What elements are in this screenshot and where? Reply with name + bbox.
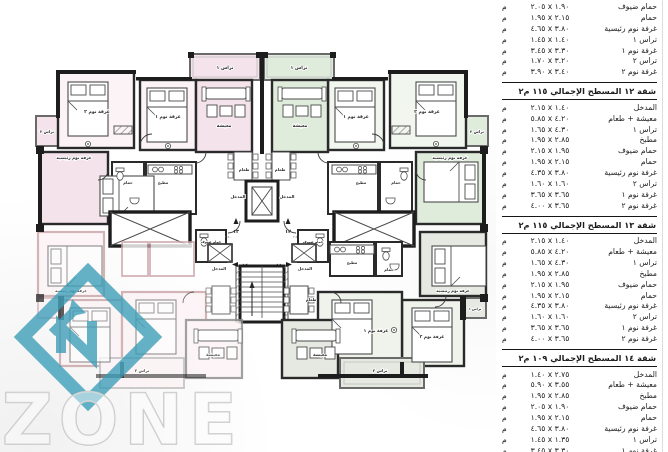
unit-label: م (502, 114, 515, 125)
room-dimensions: ٥.٨٥ x ٤.٢٠ (515, 247, 585, 258)
room-name: حمام ضيوف (585, 402, 657, 413)
room-name: تراس ١ (585, 125, 657, 136)
room-name: حمام (585, 413, 657, 424)
room-name: المدخل (585, 236, 657, 247)
entrance-label: المدخل (212, 266, 227, 271)
room-dimensions: ٣.٦٥ x ٣.٦٥ (515, 190, 585, 201)
room-dimensions: ٤.٠٠ x ٣.٦٥ (515, 201, 585, 212)
room-label: تراس ٢ (373, 368, 388, 373)
room-name: حمام (585, 13, 657, 24)
room-dimensions: ٥.٩٠ x ٣.٥٥ (515, 380, 585, 391)
room-name: مطبخ (585, 135, 657, 146)
apartment-section-header: شقة ١٣ المسطح الإجمالي ١١٥ م٢ (502, 216, 657, 234)
unit-label: م (502, 247, 515, 258)
room-dimensions: ٢.٠٥ x ١.٩٠ (515, 402, 585, 413)
ceiling-fan-icon (85, 141, 90, 146)
room-dimensions: ٢.١٥ x ١.٩٥ (515, 146, 585, 157)
room-dimensions: ١.٦٥ x ٤.٣٠ (515, 125, 585, 136)
dimension-row: م١.٦٥ x ٤.٣٠تراس ١ (502, 125, 657, 136)
room-name: غرفة نوم ٢ (585, 67, 657, 78)
room-label: تراس ٢ (40, 129, 55, 134)
room-name: تراس ٢ (585, 312, 657, 323)
unit-label: م (502, 280, 515, 291)
sink-icon (386, 198, 395, 204)
unit-label: م (502, 446, 515, 452)
unit-label: م (502, 67, 515, 78)
dimension-row: م١.٦٠ x ١.٦٠تراس ٢ (502, 312, 657, 323)
entrance-label: المدخل (280, 194, 296, 199)
sink-icon (130, 198, 139, 204)
ceiling-fan-icon (433, 141, 438, 146)
room-dimensions: ٤.٦٥ x ٣.٨٠ (515, 424, 585, 435)
dining-table-icon (206, 286, 236, 314)
room-dimensions: ٣.٦٥ x ٣.٦٥ (515, 323, 585, 334)
unit-label: م (502, 312, 515, 323)
dimension-row: م٢.٠٥ x ١.٩٠حمام ضيوف (502, 402, 657, 413)
dimension-row: م٣.٩٠ x ٣.٤٠غرفة نوم ٢ (502, 67, 657, 78)
room-label: مطبخ (356, 180, 367, 185)
room-label: تراس ١ (291, 66, 308, 71)
bed-icon (68, 82, 108, 136)
room-dimensions: ٤.٣٥ x ٣.٨٠ (515, 168, 585, 179)
room-label: حمام (391, 180, 401, 185)
dimension-row: م٣.٦٥ x ٣.٦٥غرفة نوم ١ (502, 323, 657, 334)
unit-label: م (502, 291, 515, 302)
kitchen-counter-icon (330, 245, 374, 254)
dimension-table: م٢.٠٥ x ١.٩٠حمام ضيوفم١.٩٥ x ٢.١٥حمامم٤.… (496, 0, 668, 452)
room-dimensions: ٤.٦٥ x ٣.٨٠ (515, 24, 585, 35)
room-dimensions: ١.٤٠ x ٢.٧٥ (515, 370, 585, 381)
room-name: معيشة + طعام (585, 380, 657, 391)
room-label: غرفة نوم ٢ (84, 109, 110, 115)
room-name: حمام (585, 291, 657, 302)
dimension-row: م١.٦٠ x ١.٦٠تراس ٢ (502, 179, 657, 190)
unit-label: م (502, 103, 515, 114)
dimension-row: م١.٩٥ x ٢.١٥حمام (502, 413, 657, 424)
room-name: غرفة نوم ١ (585, 446, 657, 452)
room-dimensions: ١.٩٥ x ٢.١٥ (515, 413, 585, 424)
apartment-section-header: شقة ١٤ المسطح الإجمالي ١٠٩ م٢ (502, 349, 657, 367)
toilet-icon (116, 168, 124, 180)
room-name: غرفة نوم رئيسية (585, 424, 657, 435)
unit-label: م (502, 258, 515, 269)
apartment-number: ١٤ (242, 263, 248, 269)
floor-plan-panel: تراس ١ تراس ٢ غرفة نوم ٢ غرفة نوم ١ معيش… (0, 0, 496, 452)
dining-table-icon (266, 152, 296, 180)
room-dimensions: ١.٧٠ x ٣.٢٠ (515, 56, 585, 67)
room-dimensions: ٢.٠٥ x ١.٩٠ (515, 2, 585, 13)
tiny-dimension: ٢.٥٠ (293, 235, 299, 239)
room-dimensions: ١.٦٠ x ١.٦٠ (515, 312, 585, 323)
room-label: طعام (239, 167, 250, 172)
tiny-dimension: ٤.٥٠ (225, 235, 231, 239)
room-label: تراس ٢ (470, 129, 485, 134)
entrance-label: المدخل (298, 266, 313, 271)
room-name: غرفة نوم رئيسية (585, 24, 657, 35)
dimension-row: م٤.٦٥ x ٣.٨٠غرفة نوم رئيسية (502, 24, 657, 35)
room-label: غرفة نوم ٢ (420, 335, 445, 340)
dimension-row: م١.٩٥ x ٢.٨٥مطبخ (502, 135, 657, 146)
room-name: غرفة نوم رئيسية (585, 168, 657, 179)
ceiling-fan-icon (165, 143, 170, 148)
room-name: تراس ١ (585, 435, 657, 446)
room-dimensions: ١.٦٥ x ٤.٣٠ (515, 258, 585, 269)
room-dimensions: ٥.٨٥ x ٤.٢٠ (515, 114, 585, 125)
floor-plan: تراس ١ تراس ٢ غرفة نوم ٢ غرفة نوم ١ معيش… (0, 0, 496, 452)
dimension-row: م٣.٤٥ x ٣.٣٠غرفة نوم ١ (502, 46, 657, 57)
room-name: غرفة نوم ١ (585, 323, 657, 334)
dimension-row: م١.٤٥ x ١.٤٠تراس ١ (502, 35, 657, 46)
dimension-row: م١.٦٥ x ٤.٣٠تراس ١ (502, 258, 657, 269)
room-label: غرفة نوم ١ (155, 115, 181, 120)
room-dimensions: ٢.١٥ x ١.٩٥ (515, 280, 585, 291)
dimension-row: م٢.١٥ x ١.٤٠المدخل (502, 103, 657, 114)
dimension-row: م٤.٦٥ x ٣.٨٠غرفة نوم رئيسية (502, 424, 657, 435)
unit-label: م (502, 146, 515, 157)
room-name: المدخل (585, 370, 657, 381)
dimension-row: م٢.٠٥ x ١.٩٠حمام ضيوف (502, 2, 657, 13)
dimension-row: م١.٩٥ x ٢.١٥حمام (502, 13, 657, 24)
unit-label: م (502, 391, 515, 402)
unit-label: م (502, 380, 515, 391)
room-label: تراس ١ (217, 66, 234, 71)
room-label: غرفة نوم رئيسية (436, 288, 470, 293)
room-label: مطبخ (347, 260, 358, 265)
unit-label: م (502, 125, 515, 136)
room-dimensions: ١.٩٥ x ٢.٨٥ (515, 391, 585, 402)
dimension-row: م٣.٤٥ x ٣.٣٠غرفة نوم ١ (502, 446, 657, 452)
dimension-row: م١.٩٥ x ٢.١٥حمام (502, 157, 657, 168)
room-name: مطبخ (585, 391, 657, 402)
dimension-row: م٢.١٥ x ١.٤٠المدخل (502, 236, 657, 247)
bed-icon (432, 246, 486, 286)
room-name: حمام ضيوف (585, 146, 657, 157)
dimension-row: م١.٧٠ x ٣.٢٠تراس ٢ (502, 56, 657, 67)
room-name: تراس ٢ (585, 56, 657, 67)
unit-label: م (502, 46, 515, 57)
room-name: تراس ٢ (585, 179, 657, 190)
kitchen-counter-icon (148, 165, 192, 174)
room-dimensions: ٤.٣٥ x ٣.٨٠ (515, 301, 585, 312)
unit-label: م (502, 424, 515, 435)
dimension-row: م٤.٣٥ x ٣.٨٠غرفة نوم رئيسية (502, 301, 657, 312)
dining-table-icon (228, 152, 258, 180)
ceiling-fan-icon (353, 143, 358, 148)
dimension-row: م٢.١٥ x ١.٩٥حمام ضيوف (502, 146, 657, 157)
room-dimensions: ١.٩٥ x ٢.١٥ (515, 157, 585, 168)
room-name: غرفة نوم ٢ (585, 334, 657, 345)
room-dimensions: ٤.٠٠ x ٣.٦٥ (515, 334, 585, 345)
room-dimensions: ٣.٩٠ x ٣.٤٠ (515, 67, 585, 78)
room-dimensions: ٣.٤٥ x ٣.٣٠ (515, 446, 585, 452)
bed-icon (424, 162, 478, 202)
watermark-brand: ZONE (2, 379, 243, 452)
room-label: غرفة نوم ١ (343, 115, 369, 120)
room-name: معيشة + طعام (585, 247, 657, 258)
room-dimensions: ٣.٤٥ x ٣.٣٠ (515, 46, 585, 57)
unit-label: م (502, 334, 515, 345)
room-label: غرفة نوم رئيسية (56, 155, 91, 160)
room-name: تراس ١ (585, 258, 657, 269)
page-edge-line (662, 0, 663, 452)
room-label: معيشة (293, 124, 308, 129)
unit-label: م (502, 168, 515, 179)
unit-label: م (502, 2, 515, 13)
dimension-row: م٢.١٥ x ١.٩٥حمام ضيوف (502, 280, 657, 291)
brochure-page: تراس ١ تراس ٢ غرفة نوم ٢ غرفة نوم ١ معيش… (0, 0, 668, 452)
room-dimensions: ١.٩٥ x ٢.١٥ (515, 13, 585, 24)
dimension-row: م٥.٩٠ x ٣.٥٥معيشة + طعام (502, 380, 657, 391)
unit-label: م (502, 13, 515, 24)
unit-label: م (502, 179, 515, 190)
room-dimensions: ١.٩٥ x ٢.٨٥ (515, 135, 585, 146)
room-name: حمام (585, 157, 657, 168)
room-dimensions: ١.٩٥ x ٢.١٥ (515, 291, 585, 302)
unit-label: م (502, 56, 515, 67)
apartment-section-header: شقة ١٢ المسطح الإجمالي ١١٥ م٢ (502, 82, 657, 100)
room-label: طعام (306, 297, 317, 302)
room-name: معيشة + طعام (585, 114, 657, 125)
dimension-row: م١.٩٥ x ٢.٨٥مطبخ (502, 391, 657, 402)
unit-label: م (502, 301, 515, 312)
dimension-row: م١.٤٥ x ١.٣٥تراس ١ (502, 435, 657, 446)
room-dimensions: ١.٤٥ x ١.٤٠ (515, 35, 585, 46)
toilet-icon (382, 248, 390, 260)
room-label: معيشة (313, 353, 327, 358)
unit-label: م (502, 236, 515, 247)
bed-icon (332, 300, 372, 354)
room-label: مطبخ (158, 180, 169, 185)
room-name: غرفة نوم ١ (585, 46, 657, 57)
room-dimensions: ١.٩٥ x ٢.٨٥ (515, 269, 585, 280)
dimension-row: م٣.٦٥ x ٣.٦٥غرفة نوم ١ (502, 190, 657, 201)
unit-label: م (502, 35, 515, 46)
bed-icon (416, 82, 456, 136)
dimension-row: م٤.٠٠ x ٣.٦٥غرفة نوم ٢ (502, 201, 657, 212)
unit-label: م (502, 190, 515, 201)
elevator-icon (246, 181, 278, 221)
room-label: حمام (123, 180, 133, 185)
room-dimensions: ٢.١٥ x ١.٤٠ (515, 236, 585, 247)
unit-label: م (502, 370, 515, 381)
room-label: غرفة نوم رئيسية (432, 155, 467, 160)
room-name: غرفة نوم ١ (585, 190, 657, 201)
room-name: المدخل (585, 103, 657, 114)
unit-label: م (502, 402, 515, 413)
room-dimensions: ٢.١٥ x ١.٤٠ (515, 103, 585, 114)
dimension-row: م٥.٨٥ x ٤.٢٠معيشة + طعام (502, 114, 657, 125)
unit-label: م (502, 157, 515, 168)
room-name: حمام ضيوف (585, 280, 657, 291)
room-label: غرفة نوم ١ (364, 329, 389, 334)
ceiling-fan-icon (391, 327, 396, 332)
unit-label: م (502, 269, 515, 280)
room-name: حمام ضيوف (585, 2, 657, 13)
room-name: غرفة نوم رئيسية (585, 301, 657, 312)
room-name: غرفة نوم ٢ (585, 201, 657, 212)
apartment-number: ١١ (276, 263, 282, 269)
room-label: تراس ٢ (135, 368, 150, 373)
unit-label: م (502, 413, 515, 424)
dimension-row: م٤.٠٠ x ٣.٦٥غرفة نوم ٢ (502, 334, 657, 345)
unit-label: م (502, 323, 515, 334)
entrance-label: المدخل (231, 194, 247, 199)
room-label: طعام (275, 167, 286, 172)
wardrobe-icon (114, 126, 132, 134)
room-label: غرفة نوم ٢ (414, 109, 440, 115)
dimension-row: م١.٩٥ x ٢.٨٥مطبخ (502, 269, 657, 280)
room-name: مطبخ (585, 269, 657, 280)
room-label: تراس ١ (469, 307, 482, 311)
room-name: تراس ١ (585, 35, 657, 46)
room-dimensions: ١.٦٠ x ١.٦٠ (515, 179, 585, 190)
unit-label: م (502, 24, 515, 35)
room-label: حمام (384, 267, 394, 272)
unit-label: م (502, 135, 515, 146)
toilet-icon (400, 168, 408, 180)
room-dimensions: ١.٤٥ x ١.٣٥ (515, 435, 585, 446)
dimension-row: م١.٩٥ x ٢.١٥حمام (502, 291, 657, 302)
stairs-icon (236, 266, 288, 322)
kitchen-counter-icon (332, 165, 376, 174)
dimension-row: م٤.٣٥ x ٣.٨٠غرفة نوم رئيسية (502, 168, 657, 179)
unit-label: م (502, 435, 515, 446)
room-label: معيشة (206, 353, 220, 358)
room-label: معيشة (217, 124, 232, 129)
dimension-row: م١.٤٠ x ٢.٧٥المدخل (502, 370, 657, 381)
wardrobe-icon (392, 126, 410, 134)
unit-label: م (502, 201, 515, 212)
dimension-row: م٥.٨٥ x ٤.٢٠معيشة + طعام (502, 247, 657, 258)
